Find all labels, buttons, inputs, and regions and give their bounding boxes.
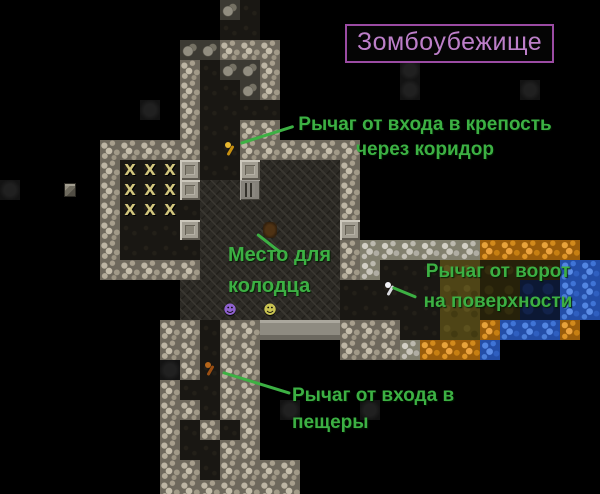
dark-floor-tile[interactable]	[180, 440, 200, 460]
unexplored-tile	[380, 360, 400, 380]
cobblestone-wall-tile[interactable]	[100, 240, 120, 260]
cobblestone-wall-tile[interactable]	[220, 40, 240, 60]
smooth-wall-tile[interactable]	[320, 320, 340, 340]
cobblestone-wall-tile[interactable]	[280, 460, 300, 480]
engraved-floor-tile[interactable]	[300, 180, 320, 200]
cobblestone-wall-tile[interactable]	[160, 320, 180, 340]
unexplored-tile	[520, 400, 540, 420]
unexplored-tile	[80, 120, 100, 140]
unexplored-tile	[140, 440, 160, 460]
annotation-fortress-entrance-lever: Рычаг от входа в крепость через коридор	[293, 112, 557, 162]
unexplored-tile	[560, 340, 580, 360]
unexplored-tile	[80, 440, 100, 460]
unexplored-tile	[40, 360, 60, 380]
water-tile[interactable]	[580, 280, 600, 300]
cobblestone-wall-tile[interactable]	[160, 380, 180, 400]
cobblestone-wall-tile[interactable]	[160, 460, 180, 480]
cobblestone-wall-tile[interactable]	[240, 40, 260, 60]
dark-floor-tile[interactable]	[200, 160, 220, 180]
cobblestone-wall-tile[interactable]	[160, 400, 180, 420]
unexplored-tile	[100, 400, 120, 420]
engraved-floor-tile[interactable]	[300, 220, 320, 240]
unexplored-tile	[580, 480, 600, 494]
unexplored-tile	[0, 400, 20, 420]
engraved-floor-tile[interactable]	[300, 160, 320, 180]
engraved-floor-tile[interactable]	[200, 180, 220, 200]
unexplored-tile	[460, 60, 480, 80]
cobblestone-wall-tile[interactable]	[240, 420, 260, 440]
sand-tile[interactable]	[420, 340, 440, 360]
pillar-tile[interactable]	[240, 160, 260, 180]
engraved-floor-tile[interactable]	[320, 200, 340, 220]
rough-stone-wall-tile[interactable]	[400, 340, 420, 360]
unexplored-tile	[460, 0, 480, 20]
dark-floor-tile[interactable]	[200, 60, 220, 80]
cobblestone-wall-tile[interactable]	[180, 260, 200, 280]
stockpile-x-tile[interactable]: X	[140, 160, 160, 180]
cobblestone-wall-tile[interactable]	[180, 360, 200, 380]
cobblestone-wall-tile[interactable]	[220, 320, 240, 340]
unexplored-tile	[280, 60, 300, 80]
water-tile[interactable]	[580, 300, 600, 320]
dark-floor-tile[interactable]	[420, 320, 440, 340]
cobblestone-wall-tile[interactable]	[180, 480, 200, 494]
engraved-floor-tile[interactable]	[200, 240, 220, 260]
lever-cave-entrance[interactable]	[200, 360, 220, 380]
engraved-floor-tile[interactable]	[200, 260, 220, 280]
engraved-floor-tile[interactable]	[280, 300, 300, 320]
dwarf-yellow[interactable]: ☻	[260, 300, 280, 320]
cobblestone-wall-tile[interactable]	[160, 340, 180, 360]
unexplored-tile	[480, 400, 500, 420]
engraved-floor-tile[interactable]	[180, 280, 200, 300]
engraved-floor-tile[interactable]	[220, 220, 240, 240]
unexplored-tile	[260, 440, 280, 460]
dark-floor-tile[interactable]	[220, 160, 240, 180]
rough-stone-wall-tile[interactable]	[380, 240, 400, 260]
cobblestone-wall-tile[interactable]	[100, 180, 120, 200]
unexplored-tile	[80, 20, 100, 40]
statue-tile[interactable]	[240, 180, 260, 200]
faint-rubble-tile[interactable]	[0, 180, 20, 200]
boulder-tile[interactable]	[220, 60, 240, 80]
unexplored-tile	[500, 340, 520, 360]
stockpile-x-tile[interactable]: X	[120, 180, 140, 200]
cobblestone-wall-tile[interactable]	[180, 460, 200, 480]
unexplored-tile	[260, 0, 280, 20]
smooth-wall-tile[interactable]	[260, 320, 280, 340]
unexplored-tile	[180, 20, 200, 40]
smooth-wall-tile[interactable]	[300, 320, 320, 340]
cobblestone-wall-tile[interactable]	[180, 100, 200, 120]
unexplored-tile	[120, 0, 140, 20]
unexplored-tile	[80, 60, 100, 80]
engraved-floor-tile[interactable]	[180, 300, 200, 320]
dark-floor-tile[interactable]	[120, 240, 140, 260]
cobblestone-wall-tile[interactable]	[140, 140, 160, 160]
dark-floor-tile[interactable]	[180, 200, 200, 220]
pillar-tile[interactable]	[180, 180, 200, 200]
cobblestone-wall-tile[interactable]	[240, 340, 260, 360]
pillar-tile[interactable]	[340, 220, 360, 240]
engraved-floor-tile[interactable]	[200, 280, 220, 300]
unexplored-tile	[300, 360, 320, 380]
unexplored-tile	[40, 420, 60, 440]
pillar-tile[interactable]	[180, 220, 200, 240]
dark-floor-tile[interactable]	[140, 240, 160, 260]
unexplored-tile	[160, 120, 180, 140]
unexplored-tile	[520, 380, 540, 400]
cobblestone-wall-tile[interactable]	[380, 340, 400, 360]
unexplored-tile	[80, 360, 100, 380]
engraved-floor-tile[interactable]	[280, 200, 300, 220]
sand-tile[interactable]	[460, 340, 480, 360]
boulder-tile[interactable]	[200, 40, 220, 60]
unexplored-tile	[0, 260, 20, 280]
dark-floor-tile[interactable]	[240, 0, 260, 20]
unexplored-tile	[580, 240, 600, 260]
cobblestone-wall-tile[interactable]	[120, 260, 140, 280]
dark-floor-tile[interactable]	[340, 280, 360, 300]
engraved-floor-tile[interactable]	[280, 160, 300, 180]
cobblestone-wall-tile[interactable]	[240, 400, 260, 420]
engraved-floor-tile[interactable]	[200, 200, 220, 220]
cobblestone-wall-tile[interactable]	[220, 480, 240, 494]
dark-floor-tile[interactable]	[200, 320, 220, 340]
dark-floor-tile[interactable]	[220, 100, 240, 120]
cobblestone-wall-tile[interactable]	[380, 320, 400, 340]
water-tile[interactable]	[480, 340, 500, 360]
unexplored-tile	[160, 80, 180, 100]
unexplored-tile	[540, 360, 560, 380]
dark-floor-tile[interactable]	[220, 80, 240, 100]
boulder-tile[interactable]	[240, 80, 260, 100]
cobblestone-wall-tile[interactable]	[260, 140, 280, 160]
cobblestone-wall-tile[interactable]	[180, 60, 200, 80]
dark-floor-tile[interactable]	[160, 220, 180, 240]
unexplored-tile	[100, 100, 120, 120]
unexplored-tile	[140, 420, 160, 440]
dark-floor-tile[interactable]	[340, 300, 360, 320]
engraved-floor-tile[interactable]	[220, 180, 240, 200]
water-tile[interactable]	[540, 320, 560, 340]
dark-floor-tile[interactable]	[240, 20, 260, 40]
unexplored-tile	[40, 240, 60, 260]
dark-floor-tile[interactable]	[360, 280, 380, 300]
water-tile[interactable]	[500, 320, 520, 340]
sand-tile[interactable]	[440, 340, 460, 360]
cobblestone-wall-tile[interactable]	[340, 200, 360, 220]
cobblestone-wall-tile[interactable]	[340, 180, 360, 200]
unexplored-tile	[440, 180, 460, 200]
unexplored-tile	[440, 440, 460, 460]
engraved-floor-tile[interactable]	[280, 220, 300, 240]
cobblestone-wall-tile[interactable]	[200, 480, 220, 494]
unexplored-tile	[460, 160, 480, 180]
unexplored-tile	[480, 200, 500, 220]
cobblestone-wall-tile[interactable]	[260, 40, 280, 60]
unexplored-tile	[560, 220, 580, 240]
lever-fortress-entrance[interactable]	[220, 140, 240, 160]
dark-floor-tile[interactable]	[360, 300, 380, 320]
unexplored-tile	[540, 380, 560, 400]
unexplored-tile	[280, 440, 300, 460]
cobblestone-wall-tile[interactable]	[140, 260, 160, 280]
engraved-floor-tile[interactable]	[240, 300, 260, 320]
engraved-floor-tile[interactable]	[320, 180, 340, 200]
unexplored-tile	[540, 460, 560, 480]
unexplored-tile	[280, 0, 300, 20]
cobblestone-wall-tile[interactable]	[260, 60, 280, 80]
cobblestone-wall-tile[interactable]	[180, 120, 200, 140]
cobblestone-wall-tile[interactable]	[260, 460, 280, 480]
unexplored-tile	[460, 180, 480, 200]
cobblestone-wall-tile[interactable]	[220, 380, 240, 400]
map-title-box: Зомбоубежище	[345, 24, 554, 63]
cobblestone-wall-tile[interactable]	[180, 400, 200, 420]
dark-floor-tile[interactable]	[180, 420, 200, 440]
faint-rubble-tile[interactable]	[160, 360, 180, 380]
cobblestone-wall-tile[interactable]	[100, 260, 120, 280]
engraved-floor-tile[interactable]	[260, 200, 280, 220]
unexplored-tile	[60, 220, 80, 240]
dark-floor-tile[interactable]	[260, 100, 280, 120]
pillar-tile[interactable]	[180, 160, 200, 180]
unexplored-tile	[320, 80, 340, 100]
dark-floor-tile[interactable]	[200, 380, 220, 400]
cobblestone-wall-tile[interactable]	[340, 160, 360, 180]
unexplored-tile	[460, 380, 480, 400]
engraved-floor-tile[interactable]	[260, 160, 280, 180]
dark-floor-tile[interactable]	[180, 240, 200, 260]
unexplored-tile	[80, 320, 100, 340]
dark-floor-tile[interactable]	[200, 440, 220, 460]
water-tile[interactable]	[520, 320, 540, 340]
unexplored-tile	[560, 80, 580, 100]
unexplored-tile	[120, 80, 140, 100]
cobblestone-wall-tile[interactable]	[180, 340, 200, 360]
engraved-floor-tile[interactable]	[200, 220, 220, 240]
cobblestone-wall-tile[interactable]	[340, 240, 360, 260]
cobblestone-wall-tile[interactable]	[240, 460, 260, 480]
cobblestone-wall-tile[interactable]	[160, 260, 180, 280]
unexplored-tile	[320, 460, 340, 480]
unexplored-tile	[300, 0, 320, 20]
cobblestone-wall-tile[interactable]	[120, 140, 140, 160]
unexplored-tile	[420, 180, 440, 200]
cobblestone-wall-tile[interactable]	[360, 340, 380, 360]
cobblestone-wall-tile[interactable]	[180, 80, 200, 100]
engraved-floor-tile[interactable]	[320, 300, 340, 320]
cobblestone-wall-tile[interactable]	[280, 480, 300, 494]
dark-floor-tile[interactable]	[140, 220, 160, 240]
faint-rubble-tile[interactable]	[400, 80, 420, 100]
cobblestone-wall-tile[interactable]	[220, 340, 240, 360]
unexplored-tile	[140, 380, 160, 400]
unexplored-tile	[100, 280, 120, 300]
dark-floor-tile[interactable]	[220, 420, 240, 440]
engraved-floor-tile[interactable]	[200, 300, 220, 320]
unexplored-tile	[540, 440, 560, 460]
rough-stone-wall-tile[interactable]	[360, 240, 380, 260]
stockpile-x-tile[interactable]: X	[160, 200, 180, 220]
dark-floor-tile[interactable]	[200, 140, 220, 160]
unexplored-tile	[20, 0, 40, 20]
water-tile[interactable]	[580, 260, 600, 280]
rough-stone-wall-tile[interactable]	[360, 260, 380, 280]
dark-floor-tile[interactable]	[220, 120, 240, 140]
dark-floor-tile[interactable]	[200, 400, 220, 420]
dark-floor-tile[interactable]	[200, 100, 220, 120]
engraved-floor-tile[interactable]	[320, 160, 340, 180]
unexplored-tile	[400, 480, 420, 494]
unexplored-tile	[0, 140, 20, 160]
unexplored-tile	[120, 460, 140, 480]
engraved-floor-tile[interactable]	[260, 180, 280, 200]
unexplored-tile	[20, 260, 40, 280]
cobblestone-wall-tile[interactable]	[160, 440, 180, 460]
stockpile-x-tile[interactable]: X	[120, 200, 140, 220]
cobblestone-wall-tile[interactable]	[340, 340, 360, 360]
unexplored-tile	[480, 0, 500, 20]
unexplored-tile	[520, 160, 540, 180]
cobblestone-wall-tile[interactable]	[100, 220, 120, 240]
boulder-tile[interactable]	[180, 40, 200, 60]
unexplored-tile	[560, 0, 580, 20]
cobblestone-wall-tile[interactable]	[340, 260, 360, 280]
cobblestone-wall-tile[interactable]	[240, 320, 260, 340]
unexplored-tile	[60, 240, 80, 260]
unexplored-tile	[120, 380, 140, 400]
unexplored-tile	[40, 340, 60, 360]
dark-floor-tile[interactable]	[400, 320, 420, 340]
stockpile-x-tile[interactable]: X	[120, 160, 140, 180]
unexplored-tile	[0, 440, 20, 460]
stockpile-x-tile[interactable]: X	[160, 180, 180, 200]
unexplored-tile	[160, 60, 180, 80]
faint-rubble-tile[interactable]	[400, 60, 420, 80]
cobblestone-wall-tile[interactable]	[160, 480, 180, 494]
unexplored-tile	[580, 20, 600, 40]
unexplored-tile	[540, 80, 560, 100]
engraved-floor-tile[interactable]	[300, 300, 320, 320]
unexplored-tile	[500, 420, 520, 440]
crate-item[interactable]	[60, 180, 80, 200]
unexplored-tile	[0, 300, 20, 320]
dark-floor-tile[interactable]	[380, 300, 400, 320]
cobblestone-wall-tile[interactable]	[240, 440, 260, 460]
unexplored-tile	[480, 420, 500, 440]
cobblestone-wall-tile[interactable]	[220, 440, 240, 460]
unexplored-tile	[360, 160, 380, 180]
annotation-line-text: через коридор	[293, 137, 557, 162]
unexplored-tile	[120, 280, 140, 300]
unexplored-tile	[300, 460, 320, 480]
unexplored-tile	[360, 440, 380, 460]
boulder-tile[interactable]	[240, 60, 260, 80]
cobblestone-wall-tile[interactable]	[220, 460, 240, 480]
boulder-tile[interactable]	[220, 0, 240, 20]
unexplored-tile	[120, 120, 140, 140]
stockpile-x-tile[interactable]: X	[160, 160, 180, 180]
unexplored-tile	[460, 440, 480, 460]
unexplored-tile	[520, 460, 540, 480]
smooth-wall-tile[interactable]	[280, 320, 300, 340]
unexplored-tile	[560, 420, 580, 440]
cobblestone-wall-tile[interactable]	[220, 400, 240, 420]
engraved-floor-tile[interactable]	[220, 200, 240, 220]
sand-tile[interactable]	[480, 320, 500, 340]
unexplored-tile	[40, 100, 60, 120]
dark-floor-tile[interactable]	[200, 460, 220, 480]
unexplored-tile	[40, 20, 60, 40]
unexplored-tile	[80, 340, 100, 360]
unexplored-tile	[500, 200, 520, 220]
cobblestone-wall-tile[interactable]	[200, 420, 220, 440]
unexplored-tile	[580, 40, 600, 60]
unexplored-tile	[420, 60, 440, 80]
dirt-floor-tile[interactable]	[440, 320, 460, 340]
dark-floor-tile[interactable]	[240, 100, 260, 120]
dwarf-purple[interactable]: ☻	[220, 300, 240, 320]
cobblestone-wall-tile[interactable]	[260, 480, 280, 494]
faint-rubble-tile[interactable]	[520, 80, 540, 100]
cobblestone-wall-tile[interactable]	[160, 140, 180, 160]
unexplored-tile	[560, 100, 580, 120]
dark-floor-tile[interactable]	[160, 240, 180, 260]
cobblestone-wall-tile[interactable]	[260, 80, 280, 100]
unexplored-tile	[560, 40, 580, 60]
cobblestone-wall-tile[interactable]	[180, 320, 200, 340]
unexplored-tile	[580, 200, 600, 220]
engraved-floor-tile[interactable]	[240, 200, 260, 220]
engraved-floor-tile[interactable]	[300, 200, 320, 220]
dark-floor-tile[interactable]	[200, 80, 220, 100]
unexplored-tile	[420, 440, 440, 460]
dark-floor-tile[interactable]	[180, 380, 200, 400]
cobblestone-wall-tile[interactable]	[340, 320, 360, 340]
cobblestone-wall-tile[interactable]	[100, 160, 120, 180]
cobblestone-wall-tile[interactable]	[180, 140, 200, 160]
dark-floor-tile[interactable]	[380, 260, 400, 280]
unexplored-tile	[160, 40, 180, 60]
cobblestone-wall-tile[interactable]	[100, 200, 120, 220]
dark-floor-tile[interactable]	[200, 120, 220, 140]
unexplored-tile	[580, 360, 600, 380]
cobblestone-wall-tile[interactable]	[160, 420, 180, 440]
unexplored-tile	[160, 300, 180, 320]
stockpile-x-tile[interactable]: X	[140, 200, 160, 220]
cobblestone-wall-tile[interactable]	[240, 480, 260, 494]
unexplored-tile	[500, 400, 520, 420]
engraved-floor-tile[interactable]	[320, 220, 340, 240]
sand-tile[interactable]	[560, 320, 580, 340]
unexplored-tile	[200, 20, 220, 40]
cobblestone-wall-tile[interactable]	[360, 320, 380, 340]
stockpile-x-tile[interactable]: X	[140, 180, 160, 200]
dark-floor-tile[interactable]	[120, 220, 140, 240]
unexplored-tile	[520, 340, 540, 360]
engraved-floor-tile[interactable]	[240, 220, 260, 240]
dirt-floor-tile[interactable]	[460, 320, 480, 340]
engraved-floor-tile[interactable]	[280, 180, 300, 200]
faint-rubble-tile[interactable]	[140, 100, 160, 120]
unexplored-tile	[480, 440, 500, 460]
dark-floor-tile[interactable]	[200, 340, 220, 360]
dark-floor-tile[interactable]	[220, 20, 240, 40]
cobblestone-wall-tile[interactable]	[100, 140, 120, 160]
unexplored-tile	[120, 420, 140, 440]
